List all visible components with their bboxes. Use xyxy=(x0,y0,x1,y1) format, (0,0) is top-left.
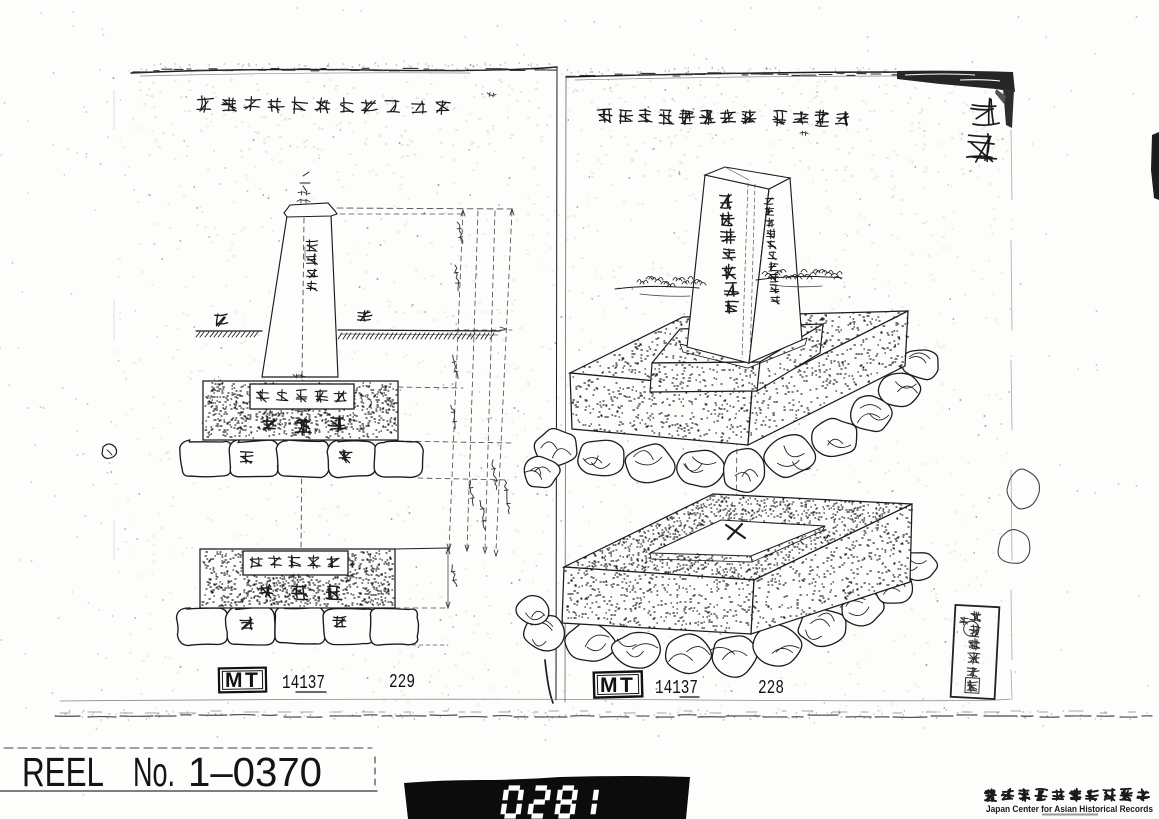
svg-text:228: 228 xyxy=(758,677,784,699)
svg-text:14137: 14137 xyxy=(282,672,325,694)
svg-text:REEL: REEL xyxy=(22,749,104,795)
svg-text:No.: No. xyxy=(133,749,175,795)
svg-text:14137: 14137 xyxy=(655,677,698,699)
svg-text:Japan Center for Asian Histori: Japan Center for Asian Historical Record… xyxy=(986,804,1153,814)
svg-text:229: 229 xyxy=(389,671,415,693)
svg-text:1–0370: 1–0370 xyxy=(188,749,322,795)
svg-text:MT: MT xyxy=(225,669,260,692)
svg-text:MT: MT xyxy=(600,674,635,697)
